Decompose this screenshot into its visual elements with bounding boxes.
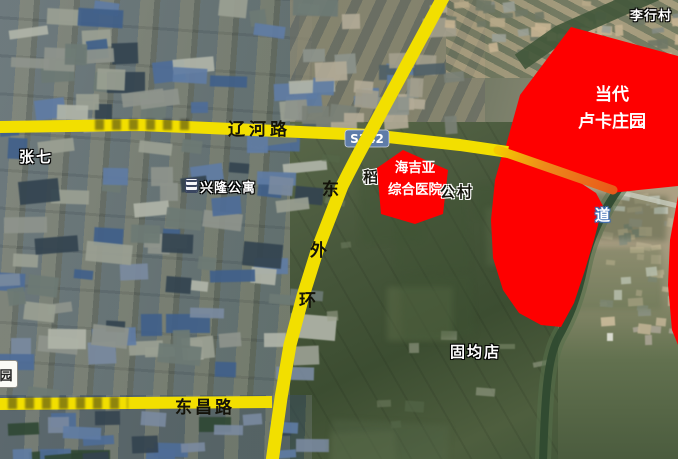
place-label-zhangqi: 张七 (19, 146, 53, 167)
region-label-dangdai: 当代 卢卡庄园 (552, 82, 672, 136)
road-label-dongchang: 东昌路 (175, 393, 235, 418)
road-label-dongwaihuan-1: 东 (322, 175, 339, 200)
place-label-gongcun: 公村 (440, 181, 474, 202)
road-label-dongwaihuan-3: 环 (299, 286, 316, 311)
place-label-xinglong: 兴隆公寓 (200, 177, 256, 196)
building-icon (185, 178, 198, 193)
road-label-dongwaihuan-2: 外 (310, 236, 327, 261)
place-label-gujundian: 固均店 (450, 341, 501, 362)
region-label-dangdai-line1: 当代 (552, 82, 672, 109)
region-label-haijiya-line1: 海吉亚 (372, 157, 458, 179)
map-canvas: S342 稻 李行村 当代 卢卡庄园 海吉亚 综合医院 张七 兴隆公寓 固均店 … (0, 0, 678, 459)
covered-text-smudge (8, 397, 128, 409)
place-label-lixingcun: 李行村 (630, 5, 672, 24)
covered-text-smudge (95, 119, 195, 130)
place-label-dao: 道 (595, 204, 610, 225)
region-label-dangdai-line2: 卢卡庄园 (552, 109, 672, 136)
poi-label-yuan: 园 (0, 360, 18, 388)
road-label-liaohe: 辽河路 (228, 115, 291, 140)
